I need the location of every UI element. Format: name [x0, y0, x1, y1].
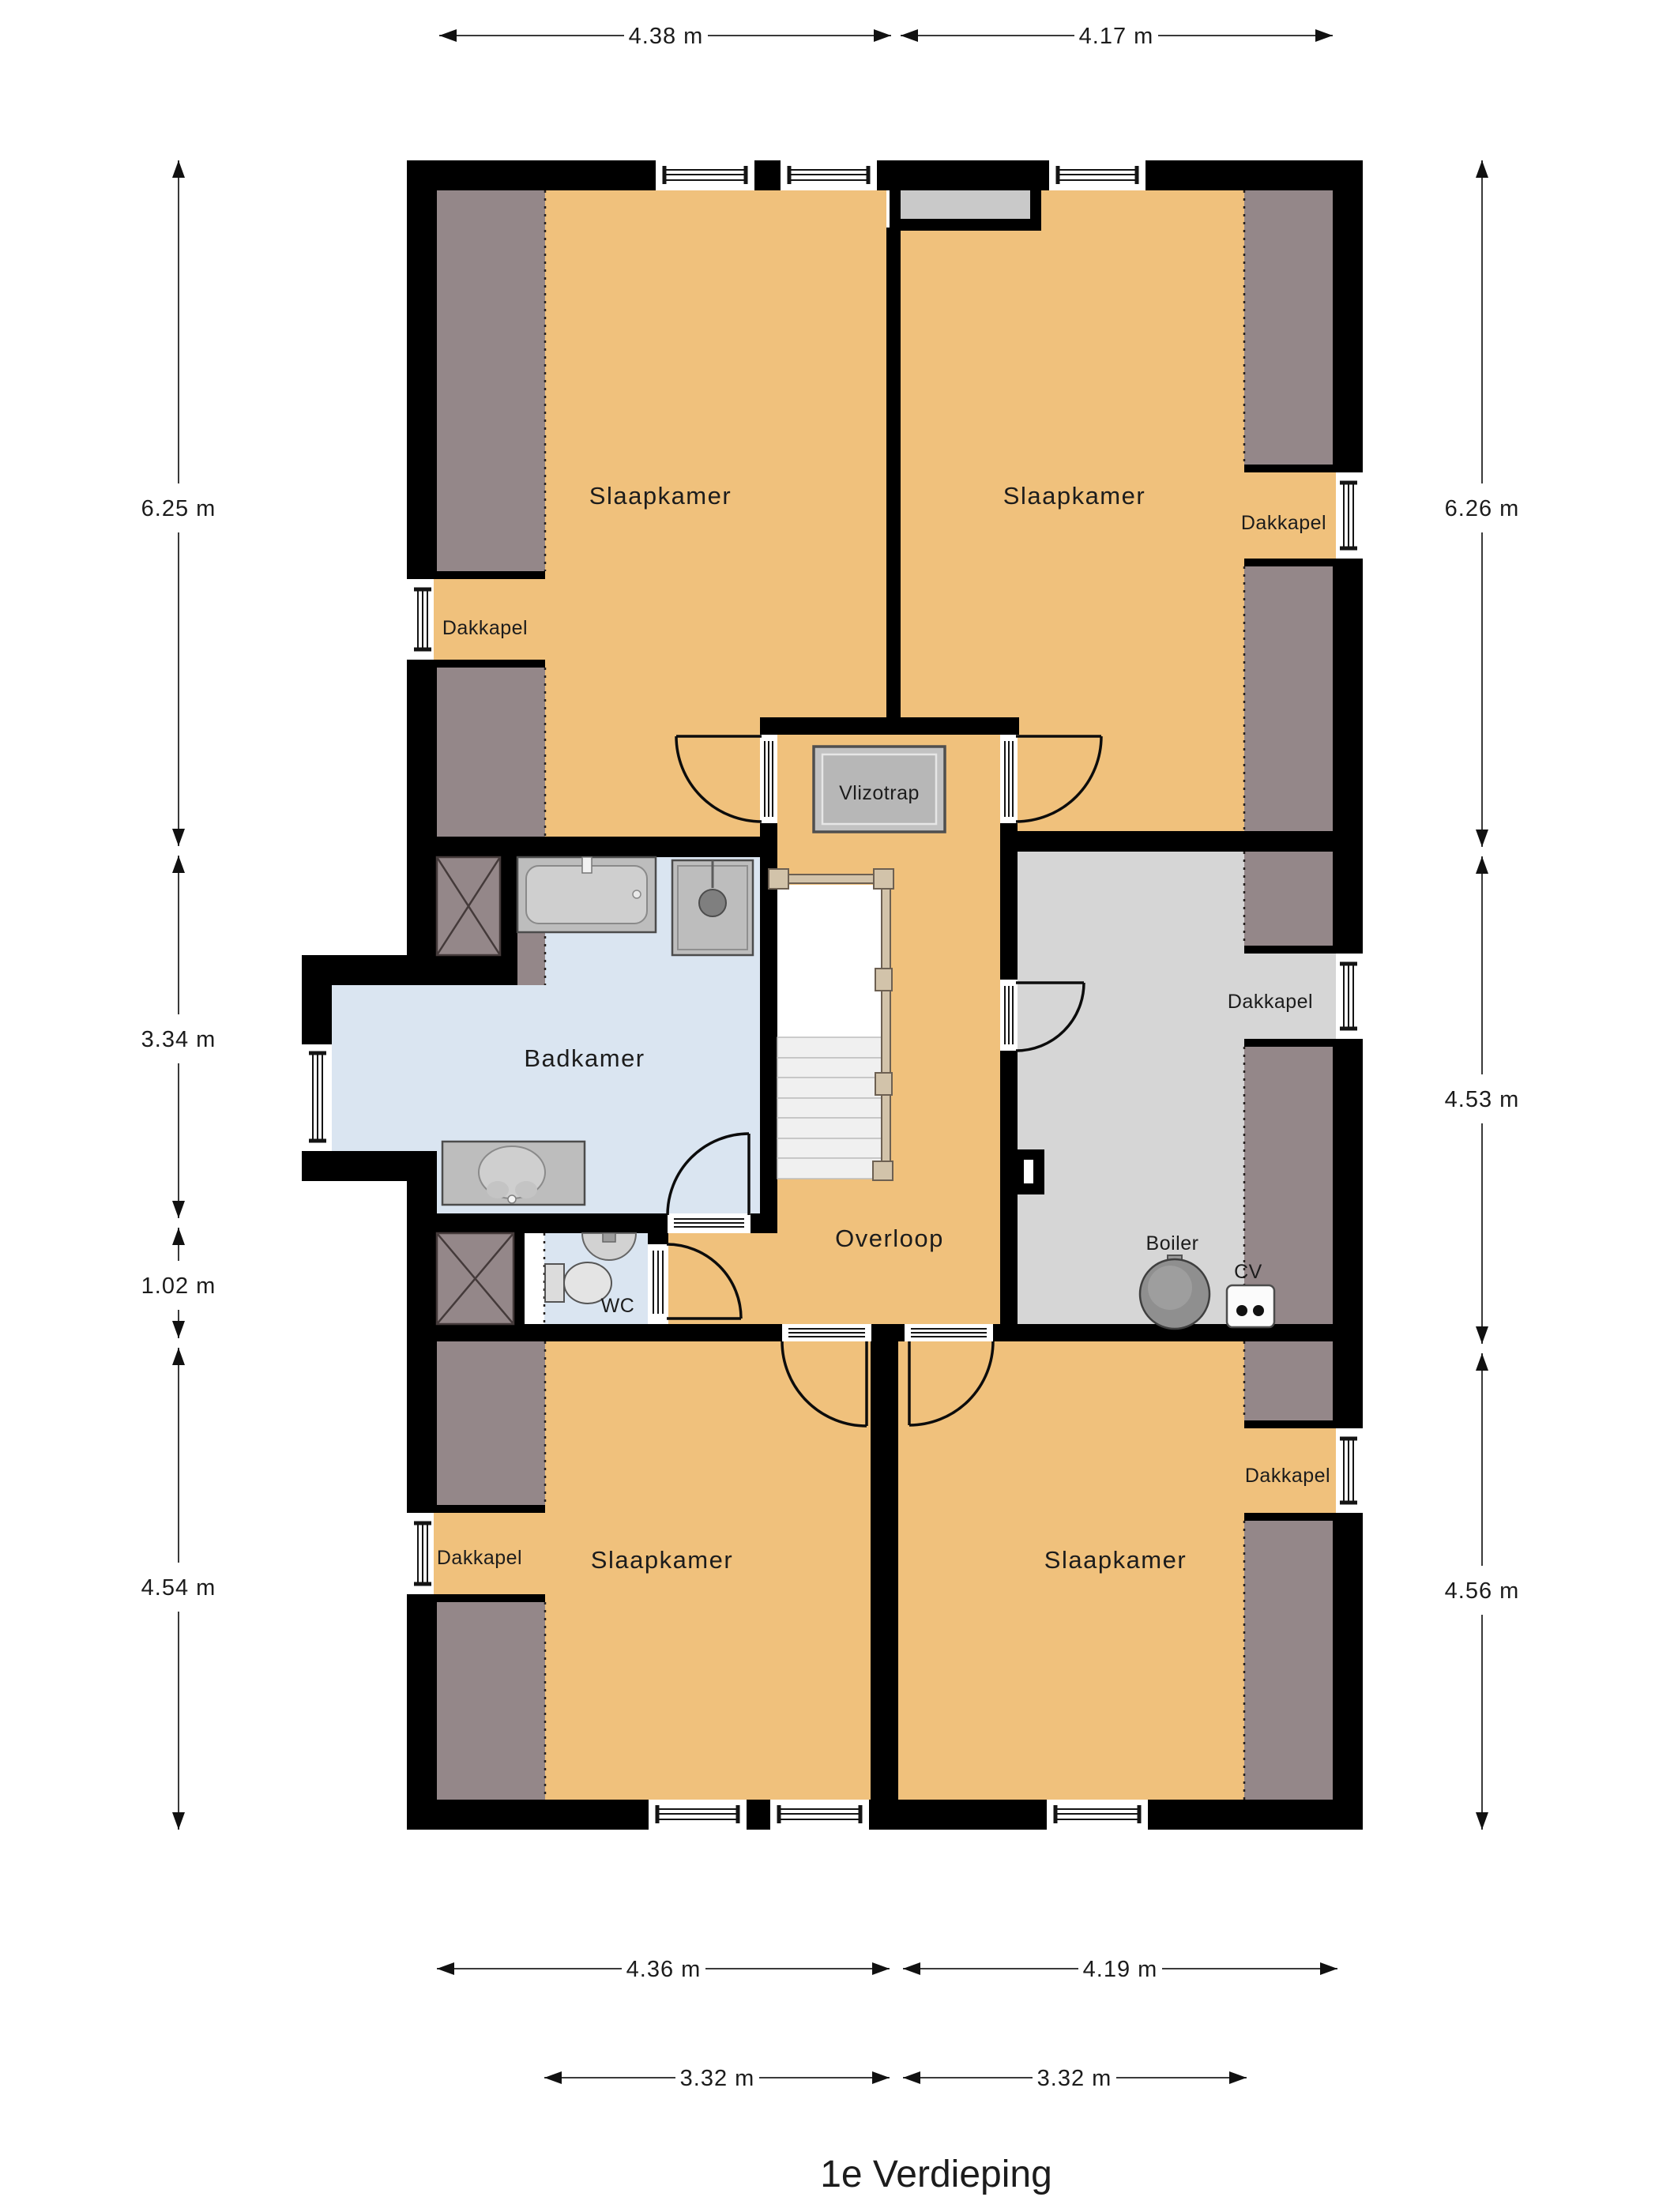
wall-segment: [1333, 160, 1363, 465]
wall-segment: [1333, 1521, 1363, 1830]
slope-strip: [437, 1602, 545, 1800]
dormer-stub: [407, 660, 545, 668]
dimension-text: 4.19 m: [1083, 1957, 1158, 1982]
window-dormer-storage: [1336, 955, 1360, 1037]
room-label-landing: Overloop: [835, 1224, 944, 1252]
wall-landing-top: [760, 717, 1019, 735]
label-dormer-top-left: Dakkapel: [442, 617, 528, 639]
room-label-bedroom-bottom-right: Slaapkamer: [1044, 1546, 1187, 1574]
dimension-right-1: 6.26 m: [1445, 160, 1520, 847]
wall-segment: [869, 1800, 1047, 1830]
dimension-text: 4.56 m: [1445, 1578, 1520, 1604]
dormer-stub: [1244, 1420, 1363, 1428]
wall-segment: [407, 668, 437, 955]
dormer-stub: [1244, 946, 1363, 954]
dormer-stub: [407, 1505, 545, 1513]
dormer-stub: [1244, 465, 1363, 472]
wall-segment: [1148, 1800, 1363, 1830]
wall-middle-bottom: [871, 1324, 905, 1341]
room-label-bedroom-top-right: Slaapkamer: [1003, 482, 1145, 510]
wall-segment: [407, 160, 437, 571]
window-dormer-top-right: [1336, 474, 1360, 557]
floorplan-canvas: Slaapkamer Slaapkamer Slaapkamer Slaapka…: [0, 0, 1659, 2212]
dimension-text: 1.02 m: [141, 1273, 216, 1299]
window-top-left-2: [781, 160, 877, 190]
label-dormer-bottom-right: Dakkapel: [1245, 1465, 1330, 1487]
bathtub-faucet: [582, 857, 592, 873]
wall-segment: [1333, 566, 1363, 946]
bathtub-drain: [633, 890, 641, 898]
shower-head: [699, 890, 726, 916]
washbasin-tap: [508, 1195, 516, 1203]
bay-wall: [302, 955, 437, 985]
window-dormer-bottom-right: [1336, 1430, 1360, 1511]
dimension-text: 4.54 m: [141, 1575, 216, 1601]
dormer-stub: [407, 1594, 545, 1602]
room-floor-bathroom-bay: [332, 985, 437, 1151]
slope-strip: [1244, 852, 1333, 946]
dimension-text: 6.25 m: [141, 496, 216, 521]
wall-segment: [754, 160, 781, 190]
page-title: 1e Verdieping: [820, 2154, 1052, 2195]
wall-segment: [407, 160, 656, 190]
window-bay-bathroom: [305, 1044, 329, 1149]
bay-wall: [302, 985, 332, 1044]
wall-middle-bottom: [407, 1324, 782, 1341]
staircase: [769, 869, 893, 1180]
wall-segment: [407, 1602, 437, 1830]
dimension-left-3: 1.02 m: [141, 1228, 216, 1338]
stair-treads: [777, 1037, 883, 1179]
slope-strip: [1244, 190, 1333, 465]
dimension-right-3: 4.56 m: [1445, 1353, 1520, 1830]
dimension-bottom-inner-2: 3.32 m: [903, 2066, 1247, 2091]
slope-strip: [437, 1341, 545, 1505]
wall-segment: [1333, 1047, 1363, 1420]
wall-storage-stub-slot: [1024, 1160, 1033, 1183]
dimension-top-1: 4.38 m: [439, 24, 891, 49]
dormer-stub: [1244, 559, 1363, 566]
wall-divider-top: [886, 228, 901, 717]
dimension-right-2: 4.53 m: [1445, 856, 1520, 1344]
slope-strip-bathroom: [517, 932, 545, 985]
window-top-left-1: [656, 160, 754, 190]
bay-wall: [302, 1151, 437, 1181]
label-cv: CV: [1234, 1261, 1262, 1283]
wall-landing-right: [1000, 823, 1018, 980]
dimension-text: 3.32 m: [680, 2066, 755, 2091]
label-boiler: Boiler: [1146, 1232, 1199, 1255]
wc-partition: [525, 1233, 544, 1324]
dimension-left-1: 6.25 m: [141, 160, 216, 846]
shaft-x-bathroom: [437, 857, 500, 955]
dimension-text: 3.34 m: [141, 1027, 216, 1052]
dimension-text: 3.32 m: [1037, 2066, 1112, 2091]
wall-storage-top: [1018, 831, 1333, 852]
wall-segment: [1145, 160, 1363, 190]
wall-divider-bottom: [871, 1341, 898, 1800]
slope-strip: [437, 668, 545, 837]
room-label-bedroom-top-left: Slaapkamer: [589, 482, 732, 510]
wall-shaft-side: [437, 955, 500, 985]
shaft-x-wc: [437, 1233, 513, 1324]
wall-bathroom-bottom: [750, 1213, 777, 1233]
room-label-bathroom: Badkamer: [524, 1044, 645, 1072]
dimension-text: 4.17 m: [1079, 24, 1154, 49]
slope-strip: [1244, 1521, 1333, 1800]
window-bottom-right: [1047, 1800, 1148, 1830]
chimney-flue: [901, 190, 1030, 219]
slope-strip: [437, 190, 545, 571]
dimension-bottom-2: 4.19 m: [903, 1957, 1337, 1982]
wall-wc-left: [513, 1233, 525, 1324]
wall-shaft-side: [500, 857, 517, 985]
dormer-stub: [1244, 1039, 1363, 1047]
wall-landing-right: [1000, 1051, 1018, 1324]
wall-bathroom-bottom: [407, 1213, 668, 1233]
wall-bathroom-top: [407, 837, 777, 857]
dimension-text: 4.38 m: [629, 24, 704, 49]
stairwell-void: [777, 885, 883, 1037]
slope-strip: [1244, 1341, 1333, 1420]
chimney: [890, 160, 1041, 231]
dimension-left-2: 3.34 m: [141, 856, 216, 1218]
label-dormer-storage: Dakkapel: [1228, 991, 1313, 1013]
dimension-text: 4.53 m: [1445, 1087, 1520, 1112]
dimension-left-4: 4.54 m: [141, 1348, 216, 1830]
bathtub: [517, 857, 656, 932]
dormer-stub: [1244, 1513, 1363, 1521]
shower: [672, 860, 753, 955]
wall-wc-right: [648, 1233, 668, 1244]
window-bottom-left-1: [649, 1800, 747, 1830]
dimension-text: 4.36 m: [626, 1957, 702, 1982]
window-bottom-left-2: [770, 1800, 869, 1830]
dimension-bottom-1: 4.36 m: [437, 1957, 890, 1982]
slope-strip: [1244, 566, 1333, 831]
wc-basin-tap: [603, 1233, 615, 1242]
wall-segment: [747, 1800, 770, 1830]
cv-unit: [1227, 1285, 1274, 1327]
floorplan-page: Slaapkamer Slaapkamer Slaapkamer Slaapka…: [0, 0, 1659, 2212]
dimension-bottom-inner-1: 3.32 m: [544, 2066, 890, 2091]
window-dormer-top-left: [410, 581, 434, 658]
wall-segment: [407, 1800, 649, 1830]
room-label-bedroom-bottom-left: Slaapkamer: [591, 1546, 733, 1574]
window-dormer-bottom-left: [410, 1514, 434, 1593]
washbasin-vanity: [442, 1142, 585, 1205]
dimension-text: 6.26 m: [1445, 496, 1520, 521]
room-label-wc: WC: [601, 1295, 635, 1317]
dimension-top-2: 4.17 m: [901, 24, 1333, 49]
label-dormer-top-right: Dakkapel: [1241, 512, 1326, 534]
dormer-stub: [407, 571, 545, 579]
window-top-right: [1049, 160, 1145, 190]
label-dormer-bottom-left: Dakkapel: [437, 1547, 522, 1569]
label-loft-hatch: Vlizotrap: [839, 782, 920, 804]
